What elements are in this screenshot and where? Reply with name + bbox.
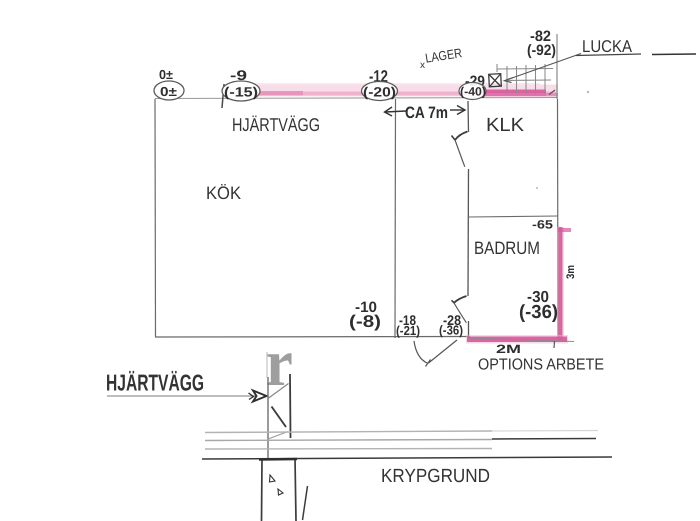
svg-text:r: r — [266, 326, 293, 400]
svg-text:(-92): (-92) — [527, 42, 556, 59]
svg-text:HJÄRTVÄGG: HJÄRTVÄGG — [106, 370, 204, 396]
svg-text:LAGER: LAGER — [424, 45, 463, 66]
svg-text:(-40): (-40) — [460, 85, 486, 99]
svg-text:x: x — [420, 60, 425, 71]
svg-text:BADRUM: BADRUM — [474, 238, 540, 258]
svg-text:HJÄRTVÄGG: HJÄRTVÄGG — [232, 114, 320, 135]
svg-text:(-36): (-36) — [519, 302, 558, 323]
svg-text:KRYPGRUND: KRYPGRUND — [381, 466, 490, 487]
svg-text:(-20): (-20) — [363, 85, 396, 100]
svg-text:(-8): (-8) — [349, 312, 381, 331]
svg-text:2M: 2M — [496, 342, 521, 356]
svg-text:(-15): (-15) — [224, 85, 258, 100]
svg-text:LUCKA: LUCKA — [582, 37, 633, 56]
svg-text:KÖK: KÖK — [206, 183, 241, 203]
svg-text:(-36): (-36) — [439, 323, 463, 338]
svg-text:0±: 0± — [160, 84, 177, 99]
svg-text:3m: 3m — [565, 265, 577, 279]
svg-text:-65: -65 — [532, 218, 553, 232]
svg-text:OPTIONS ARBETE: OPTIONS ARBETE — [478, 357, 604, 374]
svg-text:(-21): (-21) — [396, 323, 420, 338]
svg-text:0±: 0± — [159, 67, 173, 82]
svg-text:KLK: KLK — [486, 115, 524, 136]
svg-text:CA 7m: CA 7m — [405, 104, 448, 122]
